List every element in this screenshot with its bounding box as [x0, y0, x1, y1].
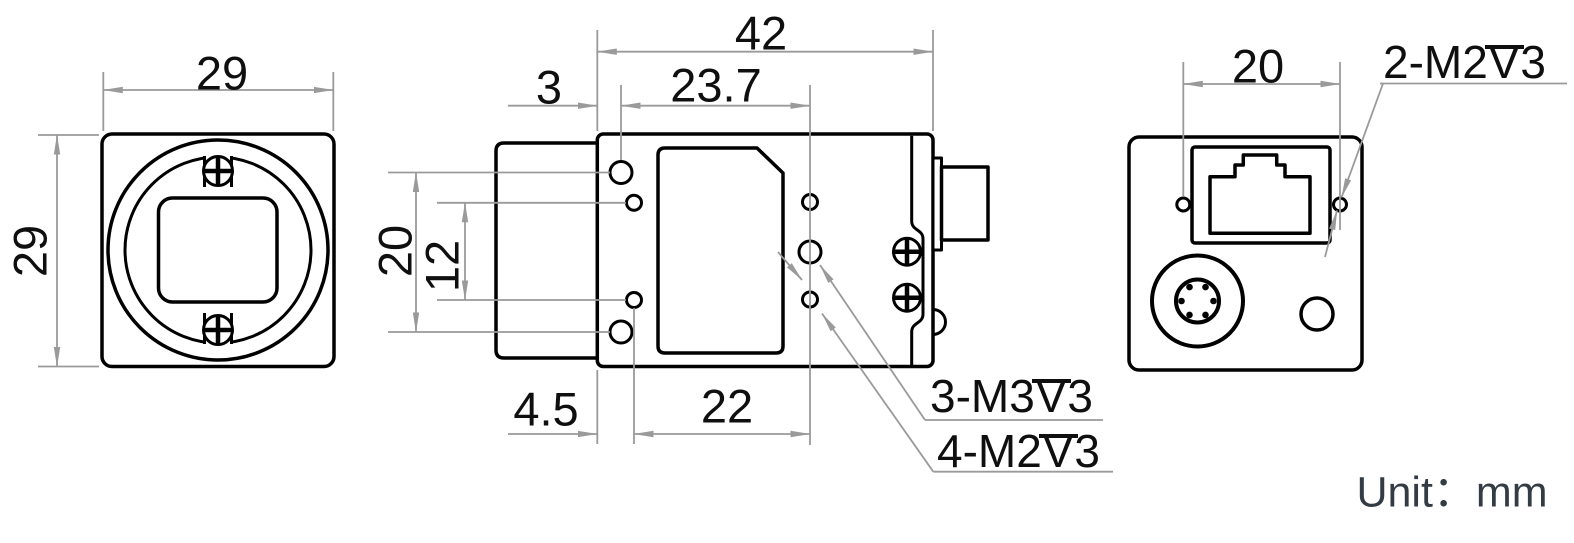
label-plate	[658, 148, 783, 353]
dim-m3-span: 23.7	[670, 62, 761, 109]
dim-back-span: 20	[1232, 43, 1284, 90]
label-2-m2-depth3: 2-M2V3	[1383, 39, 1546, 85]
dim-front-height: 29	[7, 225, 54, 277]
depth-symbol-icon: V	[1042, 428, 1075, 474]
unit-note: Unit：mm	[1356, 472, 1547, 515]
m3-hole-top-left	[610, 162, 632, 184]
depth-symbol-icon: V	[1035, 373, 1068, 419]
label-m3-suffix: 3	[1067, 370, 1093, 422]
dim-m2-span: 22	[701, 383, 753, 430]
label-m3-prefix: 3-M3	[930, 370, 1035, 422]
status-led-hole	[1301, 298, 1333, 330]
m3-hole-bottom-left	[610, 321, 632, 343]
dim-m2-pitch: 12	[419, 240, 466, 292]
dim-edge-to-m2: 4.5	[513, 386, 578, 433]
dim-m3-pitch: 20	[372, 225, 419, 277]
m2-hole-bottom-left	[627, 293, 642, 308]
dim-front-width: 29	[196, 50, 248, 97]
front-view	[102, 134, 334, 367]
label-back-m2-suffix: 3	[1520, 36, 1546, 88]
label-m2-suffix: 3	[1074, 425, 1100, 477]
dim-side-width: 42	[735, 10, 787, 57]
m2-hole-top-left	[627, 195, 642, 210]
label-back-m2-prefix: 2-M2	[1383, 36, 1488, 88]
side-connector-body	[942, 167, 989, 240]
m2-hole-back-left	[1177, 198, 1190, 211]
depth-symbol-icon: V	[1488, 39, 1521, 85]
dim-edge-to-m3: 3	[536, 64, 562, 111]
back-view	[1129, 137, 1362, 370]
drawing-canvas: 29 29 42 3 23.7 20 12 4.5 22 20 3-M3V3 4…	[0, 0, 1574, 543]
label-3-m3-depth3: 3-M3V3	[930, 373, 1093, 419]
lens-barrel	[496, 143, 598, 358]
label-m2-prefix: 4-M2	[937, 425, 1042, 477]
sensor-window	[159, 198, 278, 302]
side-bump	[933, 310, 946, 335]
label-4-m2-depth3: 4-M2V3	[937, 428, 1100, 474]
